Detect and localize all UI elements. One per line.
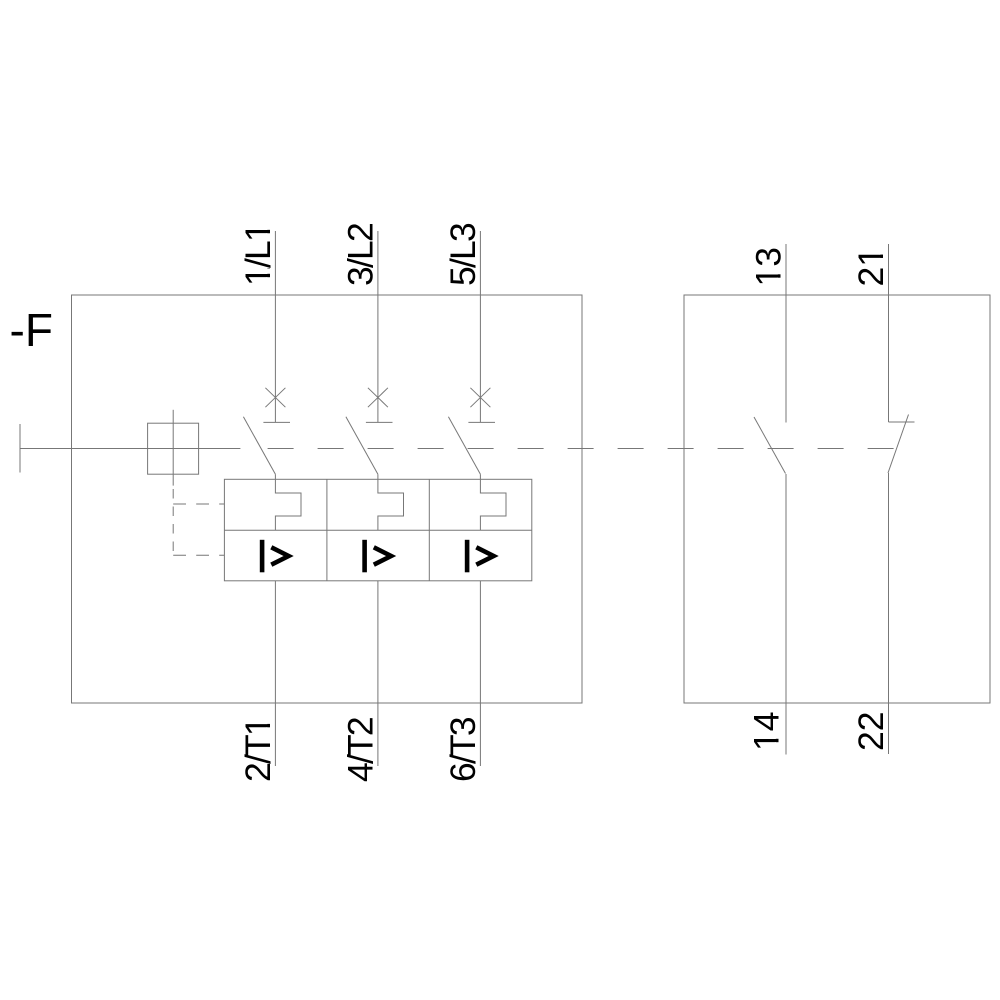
svg-text:6/T3: 6/T3 xyxy=(443,717,483,782)
svg-text:3/L2: 3/L2 xyxy=(341,224,381,286)
svg-text:22: 22 xyxy=(851,712,891,752)
svg-text:14: 14 xyxy=(747,712,787,752)
svg-text:2/T1: 2/T1 xyxy=(238,717,278,782)
svg-text:5/L3: 5/L3 xyxy=(443,223,483,286)
svg-text:4/T2: 4/T2 xyxy=(341,718,381,782)
svg-text:-F: -F xyxy=(10,304,53,356)
svg-text:13: 13 xyxy=(748,247,788,287)
svg-text:21: 21 xyxy=(851,247,891,287)
svg-text:1/L1: 1/L1 xyxy=(238,223,278,286)
